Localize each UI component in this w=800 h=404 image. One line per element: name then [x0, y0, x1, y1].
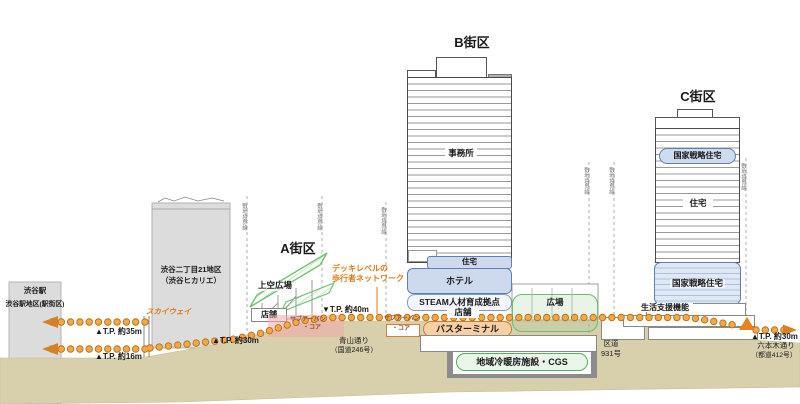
suburban-core-b-line1: サブアーバン	[384, 316, 420, 323]
dhc-label: 地域冷暖房施設・CGS	[476, 357, 568, 367]
roppongi-road-label-line1: 六本木通り	[753, 342, 799, 351]
suburban-core-a-line2: ・コア	[303, 325, 321, 332]
life-support-label: 生活支援機能	[637, 303, 693, 312]
roppongi-road-label-line2: （都道412号）	[747, 352, 800, 360]
deck-network-label-line2: 歩行者ネットワーク	[332, 274, 404, 283]
aoyama-road-label-line2: （国道246号）	[323, 347, 385, 355]
tp35-label: ▲T.P. 約35m	[95, 327, 142, 336]
c-residence-label: 住宅	[689, 199, 706, 209]
boundary-line-label-2: 敷地境界線	[315, 203, 323, 231]
hotel-label: ホテル	[446, 276, 473, 286]
dhc-box: 地域冷暖房施設・CGS	[456, 353, 588, 371]
office-label: 事務所	[448, 149, 474, 159]
deck-network-label-line1: デッキレベルの	[332, 264, 388, 273]
b-residence-label: 住宅	[462, 258, 477, 267]
b-office-patch: 事務所	[445, 147, 477, 160]
ward-road-label-line2: 931号	[592, 350, 630, 359]
hikarie-label-line2: （渋谷ヒカリエ）	[153, 277, 229, 286]
station-district-label: 渋谷駅地区(駅街区)	[1, 301, 69, 309]
hikarie-label-line1: 渋谷二丁目21地区	[153, 266, 229, 275]
tp40-b-label: ▼T.P. 約40m	[322, 305, 369, 314]
boundary-line-label-4: 敷地境界線	[582, 167, 590, 195]
c-nsh-lower-box: 国家戦略住宅	[654, 262, 741, 305]
c-residence-patch: 住宅	[683, 198, 713, 210]
boundary-line-label-3: 敷地境界線	[379, 207, 387, 235]
steam-label: STEAM人材育成拠点	[419, 298, 500, 308]
arrow-left-upper-icon	[42, 316, 58, 328]
c-nsh-upper-label: 国家戦略住宅	[674, 151, 722, 160]
skyway-connector	[144, 316, 149, 357]
section-diagram: 渋谷駅 渋谷駅地区(駅街区) 渋谷二丁目21地区 （渋谷ヒカリエ） スカイウェイ…	[0, 0, 800, 404]
tp30-a-label: ▲T.P. 約30m	[212, 336, 259, 345]
boundary-line-label-6: 敷地境界線	[739, 163, 747, 191]
arrow-left-lower-icon	[42, 343, 58, 355]
district-b-label: B街区	[442, 36, 502, 51]
plaza-label: 広場	[546, 298, 563, 308]
district-a-label: A街区	[268, 242, 328, 257]
boundary-line-label-1: 敷地境界線	[240, 203, 248, 231]
b-basement-band	[420, 335, 597, 352]
shibuya-station-label: 渋谷駅	[12, 287, 58, 296]
c-nsh-upper-box: 国家戦略住宅	[659, 148, 736, 164]
c-podium-slab2	[623, 315, 755, 327]
hikarie-roof-antenna	[158, 197, 224, 202]
c-nsh-lower-label: 国家戦略住宅	[670, 279, 725, 289]
plaza-area: 広場	[512, 294, 598, 332]
shop-b-label: 店舗	[447, 308, 479, 318]
skyway-label: スカイウェイ	[146, 308, 191, 317]
bus-terminal-label: バスターミナル	[436, 324, 499, 334]
tp16-label: ▲T.P. 約16m	[95, 352, 142, 361]
b-tower	[407, 77, 512, 263]
suburban-core-a-line1: サブアーバン	[290, 317, 326, 324]
suburban-core-b-line2: ・コア	[392, 326, 410, 333]
aoyama-road-label-line1: 青山通り	[327, 337, 381, 346]
c-podium-slab3	[648, 327, 758, 340]
b-hotel-box: ホテル	[407, 268, 512, 294]
district-c-label: C街区	[668, 90, 728, 105]
tp30-c-label: ▲T.P. 約30m	[751, 332, 798, 341]
boundary-line-label-5: 敷地境界線	[607, 167, 615, 195]
ward-road-label-line1: 区道	[592, 340, 630, 349]
b-roof-center	[436, 57, 487, 78]
sky-plaza-label: 上空広場	[258, 281, 292, 291]
